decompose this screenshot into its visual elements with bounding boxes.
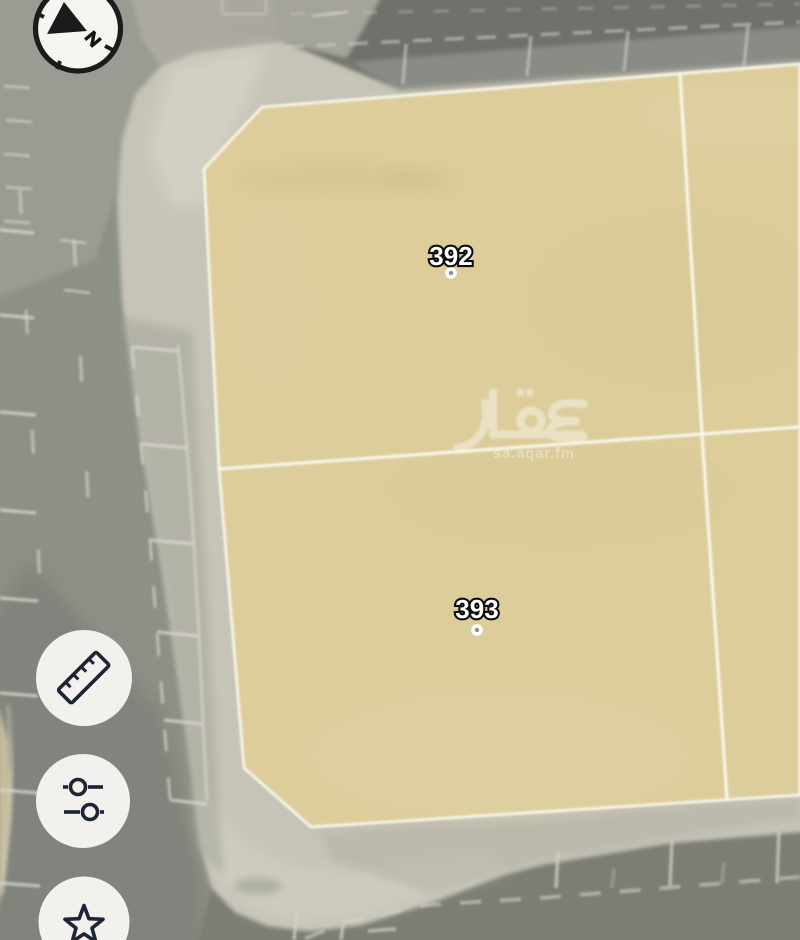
svg-text:393: 393 bbox=[455, 594, 498, 624]
svg-text:sa.aqar.fm: sa.aqar.fm bbox=[493, 446, 575, 462]
svg-text:392: 392 bbox=[429, 241, 472, 271]
